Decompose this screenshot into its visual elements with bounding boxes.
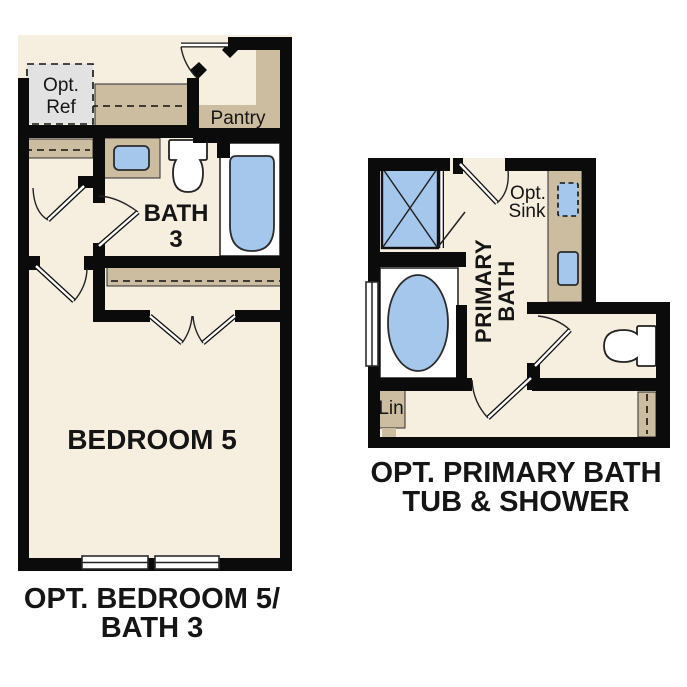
right-caption-line1: OPT. PRIMARY BATH xyxy=(370,457,661,489)
bath3-toilet xyxy=(169,140,207,192)
tub-window xyxy=(366,282,378,366)
right-caption-line2: TUB & SHOWER xyxy=(402,486,629,518)
svg-text:PRIMARY: PRIMARY xyxy=(471,239,496,343)
bath3-label-line2: 3 xyxy=(169,226,182,253)
opt-ref-label-line1: Opt. xyxy=(43,75,79,96)
bath3-sink xyxy=(114,146,149,170)
floorplan-page: Opt. Ref Pantry BATH 3 BEDROOM 5 OPT. BE… xyxy=(0,0,687,687)
right-plan: Opt. Sink PRIMARY BATH Lin OPT. PRIMARY … xyxy=(366,158,670,518)
primary-bathtub xyxy=(388,275,448,371)
floorplan-drawing: Opt. Ref Pantry BATH 3 BEDROOM 5 OPT. BE… xyxy=(0,0,687,687)
hall-shelf xyxy=(22,139,93,158)
left-caption-line2: BATH 3 xyxy=(101,612,204,644)
bath3-label-line1: BATH xyxy=(144,200,209,227)
primary-sink xyxy=(558,252,578,285)
opt-ref-label-line2: Ref xyxy=(46,97,76,118)
left-caption-line1: OPT. BEDROOM 5/ xyxy=(24,583,280,615)
opt-sink xyxy=(558,183,578,216)
bathtub xyxy=(230,156,274,251)
bedroom5-label: BEDROOM 5 xyxy=(67,424,237,455)
primary-toilet xyxy=(604,326,656,366)
left-plan: Opt. Ref Pantry BATH 3 BEDROOM 5 OPT. BE… xyxy=(18,35,292,644)
closet-shelf xyxy=(107,266,285,286)
svg-text:BATH: BATH xyxy=(494,260,519,321)
opt-sink-label-line2: Sink xyxy=(509,201,546,222)
linen-closet xyxy=(382,428,396,438)
linen-label: Lin xyxy=(378,398,403,419)
pantry-label: Pantry xyxy=(211,108,266,129)
